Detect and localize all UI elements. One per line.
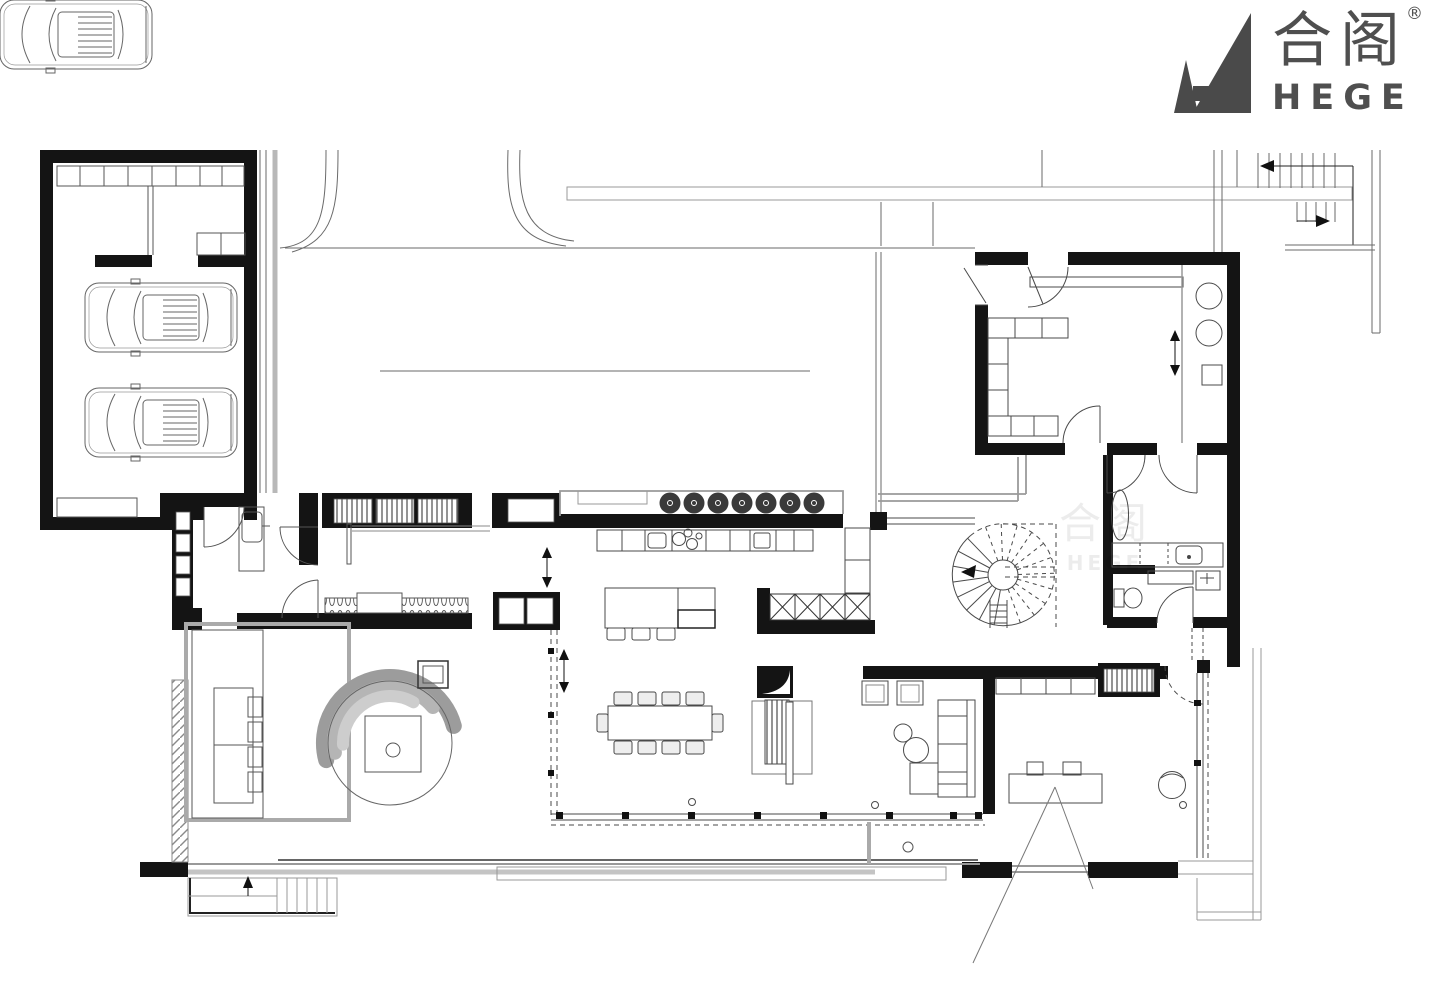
wardrobe-cell bbox=[418, 499, 458, 523]
wall-niche bbox=[499, 598, 524, 624]
side-table bbox=[910, 763, 938, 794]
toilet-tank bbox=[1114, 589, 1124, 607]
stool bbox=[657, 628, 675, 640]
dining-set bbox=[597, 692, 723, 754]
utility-box bbox=[1202, 365, 1222, 385]
west-glass-wall bbox=[548, 630, 557, 815]
wall-niche bbox=[527, 598, 553, 624]
sliding-arrow bbox=[1170, 330, 1180, 376]
washer bbox=[1196, 283, 1222, 309]
wall-niche bbox=[508, 499, 554, 522]
toilet bbox=[1124, 588, 1142, 608]
lounge-chair-seat bbox=[248, 747, 262, 767]
kitchen-counter bbox=[597, 530, 813, 551]
dryer bbox=[1196, 320, 1222, 346]
south-glass-wall bbox=[551, 812, 985, 825]
bath-door-arc-2 bbox=[1159, 455, 1197, 493]
utility-shelf bbox=[1030, 277, 1183, 287]
terrace-stairs bbox=[188, 876, 337, 916]
kitchen-island bbox=[605, 588, 715, 640]
site-roads bbox=[150, 150, 1352, 524]
registered-mark: ® bbox=[1406, 4, 1423, 24]
wc-door-arc bbox=[1157, 587, 1193, 623]
lounge-counter bbox=[192, 630, 263, 818]
bar-stools bbox=[660, 493, 825, 514]
stair-direction-arrow-right bbox=[1316, 215, 1330, 227]
wardrobe-cell bbox=[334, 499, 372, 523]
bathroom bbox=[1107, 455, 1223, 660]
sofa bbox=[938, 700, 975, 797]
desk-chair bbox=[1063, 762, 1081, 775]
coffee-table bbox=[904, 738, 929, 763]
bench-box bbox=[357, 593, 402, 613]
dining-table bbox=[608, 706, 712, 740]
dining-chair bbox=[712, 714, 723, 732]
kitchen-sink-2 bbox=[754, 533, 770, 548]
corridor-door-leaf bbox=[347, 524, 351, 564]
kitchen-sink bbox=[648, 533, 666, 548]
hall-door-arc-2 bbox=[282, 580, 318, 618]
east-terrace bbox=[1178, 648, 1261, 920]
sofa-group bbox=[862, 681, 975, 797]
car bbox=[0, 0, 152, 73]
wardrobe-cell bbox=[376, 499, 414, 523]
spiral-staircase bbox=[952, 524, 1056, 628]
bathtub bbox=[1112, 490, 1129, 540]
dining-chair bbox=[638, 692, 656, 705]
desk-chair bbox=[1027, 762, 1043, 775]
dining-chair bbox=[638, 741, 656, 754]
wine-rack bbox=[770, 594, 870, 620]
wall-grille bbox=[1104, 669, 1154, 692]
car-1 bbox=[85, 279, 237, 356]
floor-plan-drawing bbox=[0, 0, 1430, 1000]
garage-platform bbox=[57, 498, 137, 517]
dining-chair bbox=[662, 692, 680, 705]
cooktop bbox=[673, 529, 703, 550]
spiral-treads-dashed bbox=[986, 524, 1054, 623]
car-2 bbox=[85, 384, 237, 461]
floor-plan: 合阁 ® HEGE 合阁 HEGE bbox=[0, 0, 1430, 1000]
garage-door-arc bbox=[204, 507, 244, 547]
lounge-chair bbox=[1159, 772, 1186, 799]
garage bbox=[57, 166, 245, 547]
logo-mark-icon bbox=[1168, 8, 1263, 118]
dining-chair bbox=[662, 741, 680, 754]
fireplace bbox=[752, 666, 812, 784]
logo: 合阁 ® HEGE bbox=[1168, 4, 1430, 124]
exterior-door-leaf bbox=[964, 268, 986, 303]
stool bbox=[632, 628, 650, 640]
tree-trunk bbox=[386, 743, 400, 757]
garage-cabinet-row bbox=[57, 166, 244, 186]
logo-latin-text: HEGE bbox=[1272, 78, 1414, 118]
lounge-chair-seat bbox=[248, 697, 262, 717]
dining-chair bbox=[614, 741, 632, 754]
stool bbox=[607, 628, 625, 640]
lounge-chair-seat bbox=[248, 772, 262, 792]
planter bbox=[365, 716, 421, 772]
logo-chinese-text: 合阁 bbox=[1272, 10, 1408, 73]
lounge-chair-seat bbox=[248, 722, 262, 742]
sliding-arrow-living bbox=[559, 649, 569, 693]
dining-chair bbox=[686, 692, 704, 705]
tree-canopy bbox=[324, 677, 454, 760]
utility-cabinets bbox=[988, 318, 1068, 436]
stair-direction-arrow-left bbox=[1260, 160, 1274, 172]
floor-light bbox=[872, 802, 879, 809]
spiral-bottom-run bbox=[990, 600, 1007, 628]
dining-chair bbox=[597, 714, 608, 732]
dining-chair bbox=[686, 741, 704, 754]
spiral-start-arrow bbox=[961, 565, 976, 578]
kitchen bbox=[560, 455, 1026, 640]
courtyard bbox=[324, 661, 454, 805]
dining-chair bbox=[614, 692, 632, 705]
living-dining bbox=[542, 547, 1187, 825]
utility-room bbox=[964, 265, 1222, 443]
spiral-treads-solid bbox=[953, 538, 1001, 625]
floor-light bbox=[1180, 802, 1187, 809]
wc-sink bbox=[1196, 571, 1220, 590]
stair-treads-upper bbox=[1258, 153, 1335, 188]
utility-hall-door-arc bbox=[1063, 406, 1100, 443]
sliding-arrow-corridor bbox=[542, 547, 552, 588]
floor-light bbox=[689, 799, 696, 806]
